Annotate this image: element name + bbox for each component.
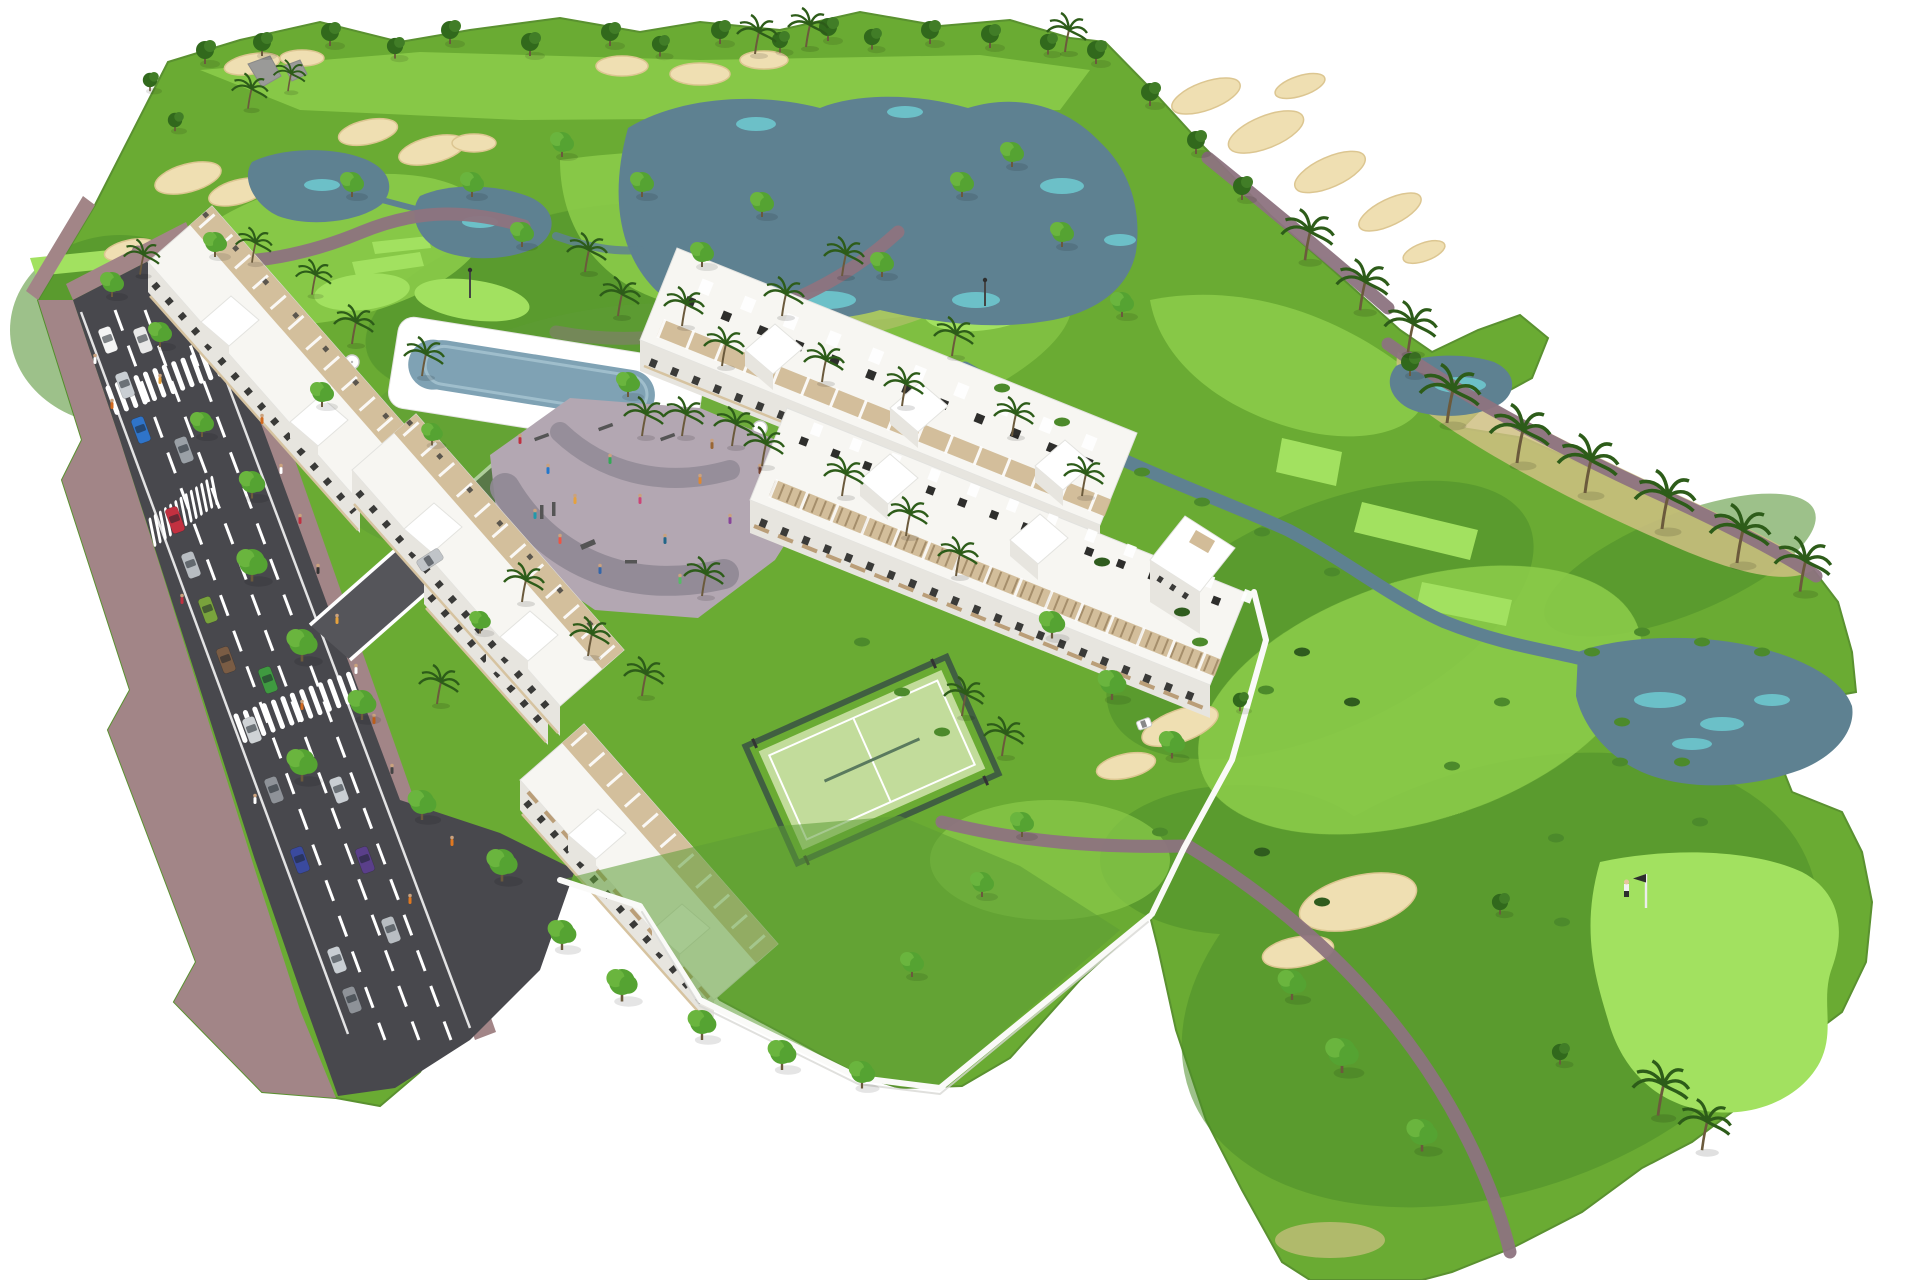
site-plan-render: Aerial 3D architectural rendering of a g… bbox=[0, 0, 1920, 1280]
golfer bbox=[1624, 880, 1629, 898]
render-image: Aerial 3D architectural rendering of a g… bbox=[0, 0, 1920, 1280]
